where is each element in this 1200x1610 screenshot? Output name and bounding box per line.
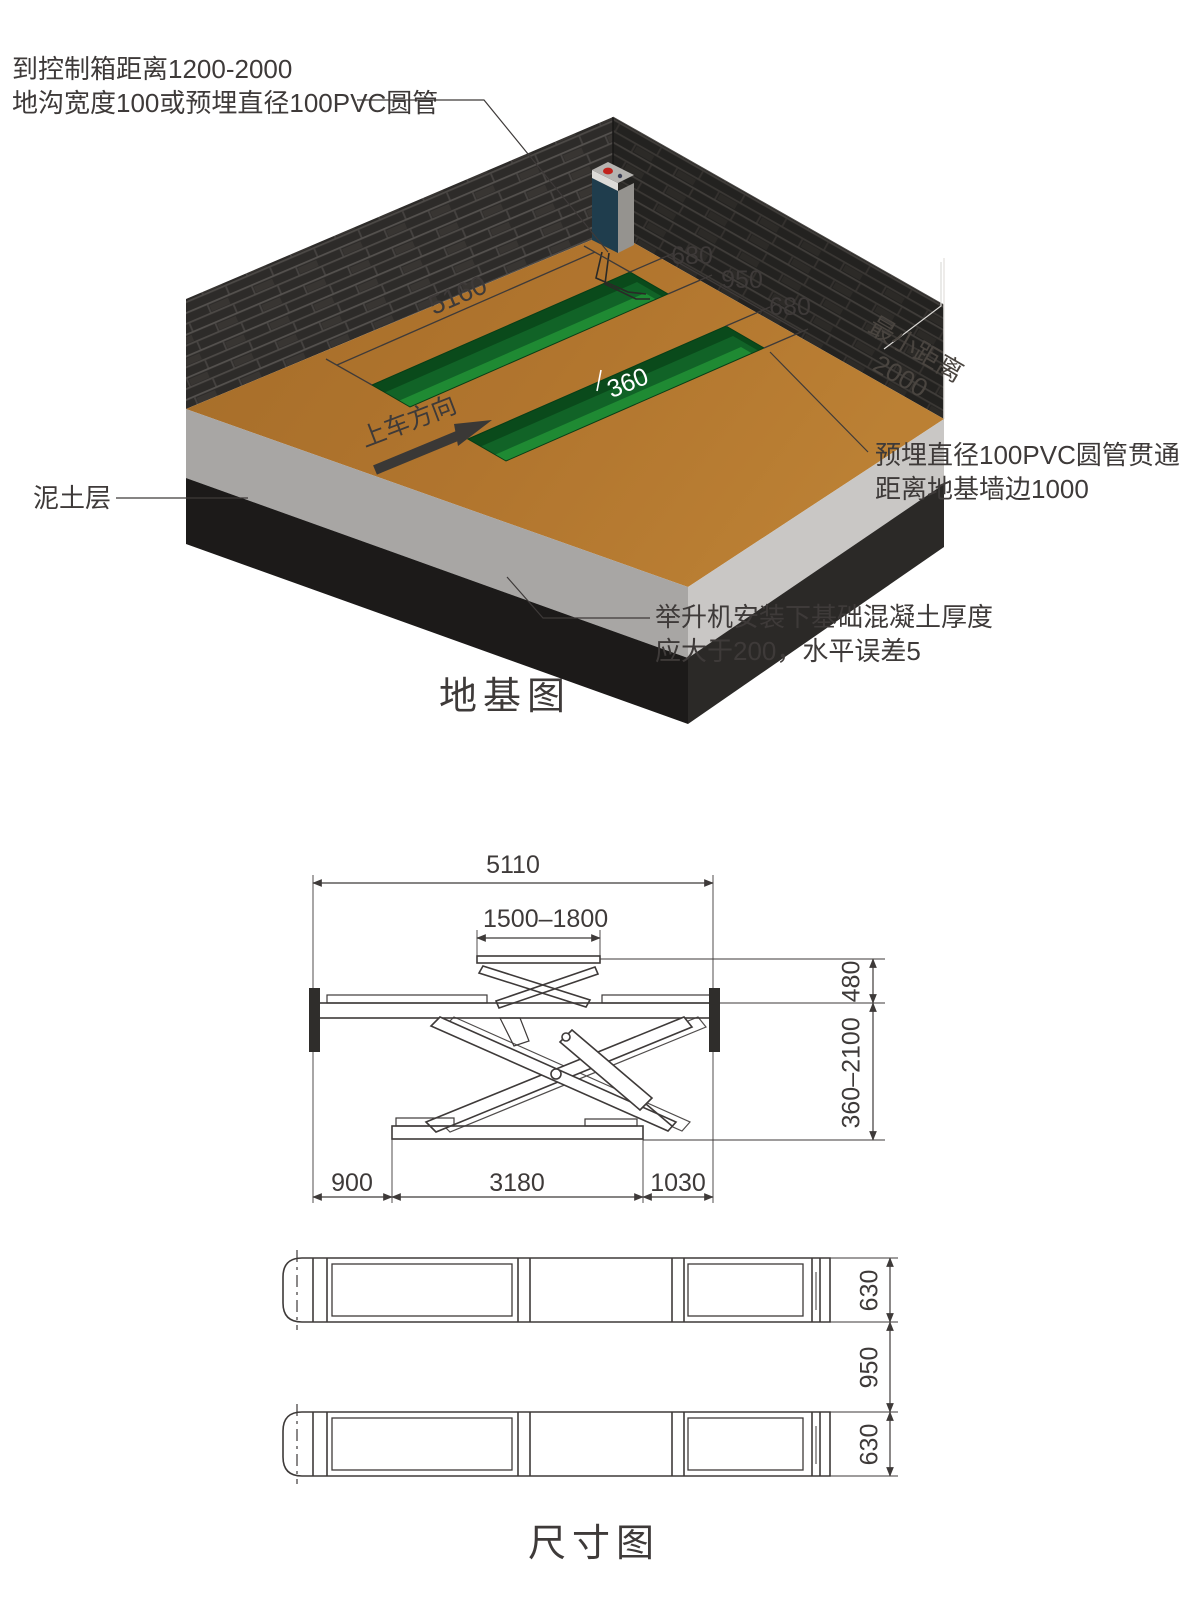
annotation-concrete-line2: 应大于200，水平误差5	[655, 634, 993, 668]
jack-platform	[477, 956, 600, 1008]
dimension-title: 尺寸图	[484, 1512, 704, 1567]
dim-rear-overhang: 1030	[643, 1169, 713, 1198]
dim-total-length: 5110	[478, 851, 548, 880]
annotation-pvc-pipe: 预埋直径100PVC圆管贯通 距离地基墙边1000	[875, 438, 1180, 506]
scissor-mechanism	[426, 1017, 706, 1132]
dim-pit-width-left: 680	[664, 242, 720, 271]
installation-drawing-page: 到控制箱距离1200-2000 地沟宽度100或预埋直径100PVC圆管 泥土层…	[0, 0, 1200, 1610]
end-block-left	[309, 988, 320, 1052]
control-box-side	[618, 183, 634, 253]
annotation-control-box-line2: 地沟宽度100或预埋直径100PVC圆管	[12, 86, 438, 120]
annotation-soil-layer: 泥土层	[33, 481, 111, 515]
dim-base-length: 3180	[482, 1169, 552, 1198]
runway-platform	[309, 988, 720, 1052]
platform-lock	[500, 1018, 529, 1046]
end-block-right	[709, 988, 720, 1052]
foundation-title: 地基图	[395, 665, 615, 720]
dim-pit-gap: 950	[714, 266, 770, 295]
annotation-pvc-line2: 距离地基墙边1000	[875, 472, 1180, 506]
control-box-front	[592, 178, 618, 253]
control-knob	[618, 174, 622, 178]
annotation-concrete: 举升机安装下基础混凝土厚度 应大于200，水平误差5	[655, 600, 993, 668]
annotation-control-box-line1: 到控制箱距离1200-2000	[12, 52, 438, 86]
dim-platform-width-top: 630	[856, 1261, 885, 1321]
dim-front-overhang: 900	[322, 1169, 382, 1198]
lift-side-view	[309, 875, 898, 1476]
lift-plan-view	[283, 1250, 830, 1484]
dim-runway-platform: 1500–1800	[483, 905, 593, 934]
dim-height-range: 360–2100	[838, 1019, 867, 1129]
dim-pit-width-right: 680	[762, 293, 818, 322]
dim-platform-gap: 950	[856, 1338, 885, 1398]
side-extension-lines	[313, 875, 898, 1476]
dim-platform-height: 480	[838, 952, 867, 1012]
emergency-button	[603, 168, 613, 175]
annotation-concrete-line1: 举升机安装下基础混凝土厚度	[655, 600, 993, 634]
annotation-control-box: 到控制箱距离1200-2000 地沟宽度100或预埋直径100PVC圆管	[12, 52, 438, 120]
drawing-graphics	[0, 0, 1200, 1610]
dim-platform-width-bottom: 630	[856, 1415, 885, 1475]
annotation-pvc-line1: 预埋直径100PVC圆管贯通	[875, 438, 1180, 472]
side-dimension-lines	[313, 883, 890, 1476]
